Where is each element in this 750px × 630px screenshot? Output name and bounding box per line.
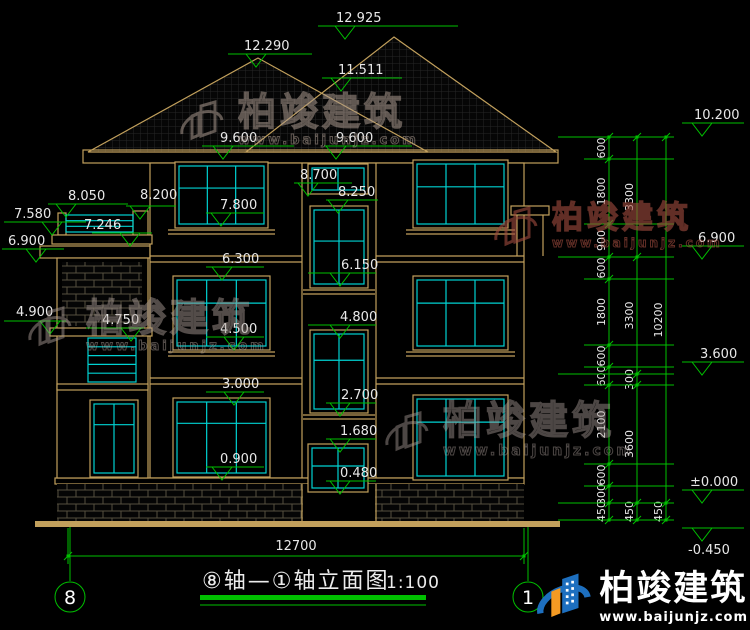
elevation-value: 1.680 bbox=[340, 424, 377, 439]
dim-value: 300 bbox=[623, 369, 636, 390]
window bbox=[310, 206, 368, 288]
ground-line bbox=[35, 521, 560, 527]
dim-value: 1800 bbox=[595, 178, 608, 206]
elevation-value: 6.900 bbox=[698, 231, 735, 246]
elevation-value: 12.290 bbox=[244, 39, 290, 54]
elevation-marker-triangle bbox=[692, 246, 712, 259]
dim-value: 3600 bbox=[623, 430, 636, 458]
elevation-value: 6.900 bbox=[8, 234, 45, 249]
bottom-dimension: 12700 bbox=[64, 528, 528, 564]
elevation-value: 8.250 bbox=[338, 185, 375, 200]
brand-logo-icon bbox=[535, 566, 593, 630]
elevation-value: 4.800 bbox=[340, 310, 377, 325]
elevation-marker: -0.450 bbox=[682, 528, 744, 558]
window-frame bbox=[413, 160, 508, 228]
elevation-marker: 12.290 bbox=[228, 39, 312, 67]
elevation-marker-triangle bbox=[26, 249, 46, 262]
dim-value: 450 bbox=[595, 501, 608, 522]
drawing-title: ⑧轴—①轴立面图1:100 bbox=[200, 569, 440, 605]
window-frame bbox=[173, 276, 270, 350]
dim-chain: 10200450 bbox=[652, 133, 670, 524]
elevation-value: 2.700 bbox=[341, 388, 378, 403]
elevation-value: 0.900 bbox=[220, 452, 257, 467]
dim-value: 450 bbox=[652, 501, 665, 522]
elevation-value: 11.511 bbox=[338, 63, 384, 78]
dim-value: 600 bbox=[595, 366, 608, 387]
elevation-value: 7.800 bbox=[220, 198, 257, 213]
window-frame bbox=[413, 395, 508, 480]
axis-number: 8 bbox=[64, 587, 76, 609]
cad-elevation-drawing: 6001800900600180060060021006003004503300… bbox=[0, 0, 750, 630]
window-frame bbox=[413, 276, 508, 350]
elevation-value: 9.600 bbox=[336, 131, 373, 146]
plinth-brick bbox=[57, 484, 524, 521]
window bbox=[90, 400, 138, 477]
brand-blue-tower bbox=[562, 574, 578, 614]
elevation-value: 4.500 bbox=[220, 322, 257, 337]
elevation-marker: 6.900 bbox=[682, 231, 744, 259]
dim-value: 1800 bbox=[595, 298, 608, 326]
roof bbox=[83, 37, 558, 163]
elevation-value: 3.000 bbox=[222, 377, 259, 392]
dim-value: 600 bbox=[595, 258, 608, 279]
elevation-value: 8.200 bbox=[140, 188, 177, 203]
elevation-value: 6.300 bbox=[222, 252, 259, 267]
elevation-marker-triangle bbox=[692, 490, 712, 503]
dim-grip bbox=[523, 555, 526, 558]
bottom-dim-value: 12700 bbox=[275, 539, 316, 554]
elevation-value: -0.450 bbox=[688, 543, 730, 558]
elevation-value: 4.750 bbox=[102, 313, 139, 328]
elevation-marker: 3.600 bbox=[682, 347, 744, 375]
window bbox=[173, 276, 270, 350]
brand-orange-block bbox=[552, 588, 561, 617]
window bbox=[413, 160, 508, 228]
dim-value: 600 bbox=[595, 138, 608, 159]
chimney-cap bbox=[511, 206, 549, 215]
axis-number: 1 bbox=[522, 587, 534, 609]
elevation-marker-triangle bbox=[692, 528, 712, 541]
elevation-marker: 10.200 bbox=[682, 108, 744, 136]
dim-value: 600 bbox=[595, 465, 608, 486]
elevation-value: 4.900 bbox=[16, 305, 53, 320]
window-frame bbox=[175, 162, 268, 228]
dim-value: 3300 bbox=[623, 183, 636, 211]
brand-name: 柏竣建筑 bbox=[599, 572, 748, 607]
elevation-marker-triangle bbox=[335, 26, 355, 39]
elevation-value: 12.925 bbox=[336, 11, 382, 26]
dim-value: 2100 bbox=[595, 411, 608, 439]
elevation-marker-triangle bbox=[692, 123, 712, 136]
window bbox=[413, 395, 508, 480]
elevation-value: 3.600 bbox=[700, 347, 737, 362]
elevation-value: ±0.000 bbox=[690, 475, 738, 490]
brand-watermark: 柏竣建筑 www.baijunjz.com bbox=[535, 566, 748, 630]
dim-value: 900 bbox=[595, 230, 608, 251]
elevation-value: 10.200 bbox=[694, 108, 740, 123]
dim-chain: 600180090060018006006002100600300450 bbox=[595, 133, 613, 524]
wing-ledge bbox=[50, 328, 152, 336]
elevation-value: 8.050 bbox=[68, 189, 105, 204]
dim-grip bbox=[67, 555, 70, 558]
dim-value: 450 bbox=[623, 501, 636, 522]
elevation-value: 8.700 bbox=[300, 168, 337, 183]
elevation-marker: 12.925 bbox=[318, 11, 458, 39]
dim-chain: 330033003003600450 bbox=[623, 133, 641, 524]
dim-value: 3300 bbox=[623, 302, 636, 330]
brand-url: www.baijunjz.com bbox=[599, 610, 748, 625]
axis-bubble: 8 bbox=[55, 527, 85, 612]
elevation-value: 7.246 bbox=[84, 218, 121, 233]
title-scale: 1:100 bbox=[386, 573, 440, 593]
dim-value: 10200 bbox=[652, 303, 665, 338]
title-underline-thick bbox=[200, 595, 426, 600]
elevation-value: 0.480 bbox=[340, 466, 377, 481]
window bbox=[413, 276, 508, 350]
elevation-drawing-canvas: 6001800900600180060060021006003004503300… bbox=[0, 0, 750, 630]
elevation-marker-triangle bbox=[692, 362, 712, 375]
wing-eave bbox=[40, 246, 150, 258]
elevation-marker: ±0.000 bbox=[682, 475, 744, 503]
elevation-value: 6.150 bbox=[341, 258, 378, 273]
dim-value: 600 bbox=[595, 346, 608, 367]
elevation-value: 9.600 bbox=[220, 131, 257, 146]
title-text: ⑧轴—①轴立面图 bbox=[202, 569, 389, 594]
window bbox=[175, 162, 268, 228]
wing-band bbox=[57, 384, 148, 390]
balcony-wall-stub bbox=[133, 211, 148, 235]
elevation-value: 7.580 bbox=[14, 207, 51, 222]
balcony-post bbox=[58, 213, 66, 235]
